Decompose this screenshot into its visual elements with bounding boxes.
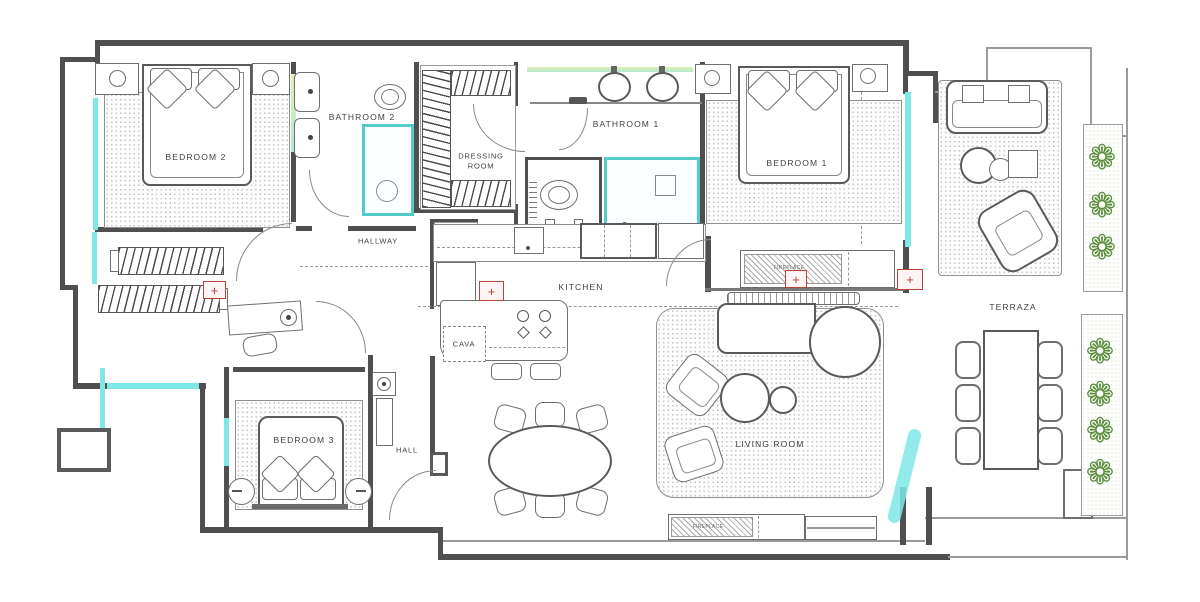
window-closet-bottom: [107, 383, 199, 389]
terrace-chair-4: [1037, 341, 1063, 379]
bathroom2-shower: [362, 124, 414, 216]
terrace-bottom-line-2: [948, 556, 1128, 558]
kitchen-fridge-divider-1: [604, 225, 605, 257]
plant-icon-4: ❁: [1086, 335, 1115, 369]
plant-icon-2: ❁: [1088, 189, 1117, 223]
terrace-post-2: [926, 487, 932, 545]
terrace-chair-3: [955, 427, 981, 465]
window-bedroom1-terrace: [905, 92, 911, 247]
wardrobe-row-1-endcap: [110, 250, 119, 272]
terrace-chair-5: [1037, 384, 1063, 422]
outlet-marker-living-right: +: [897, 269, 923, 290]
bedroom3-nightstand-right-handle: [356, 490, 366, 492]
kitchen-sink-drain: [526, 246, 530, 250]
window-bedroom2-left: [93, 98, 98, 230]
dashed-hallway-line: [300, 266, 428, 267]
kitchen-stool-1: [491, 363, 522, 380]
bathroom1-sink-2: [646, 72, 679, 102]
terrace-right-edge: [1126, 68, 1128, 560]
terrace-chair-6: [1037, 427, 1063, 465]
bedroom2-lamp-left: [109, 70, 126, 87]
label-bedroom3: BEDROOM 3: [274, 435, 335, 445]
fireplace-top-divider: [848, 252, 849, 286]
bathroom1-shower: [604, 157, 700, 232]
hall-column-dot: [382, 382, 386, 386]
stove-burner-1: [517, 310, 529, 322]
terrace-sofa-cushion-1: [962, 85, 984, 103]
plant-icon-7: ❁: [1086, 456, 1115, 490]
label-dressing-line2: ROOM: [468, 162, 495, 171]
outlet-marker-kitchen: +: [479, 281, 504, 301]
window-bathroom1-top: [527, 67, 693, 72]
label-fireplace-top: FIREPLACE: [774, 265, 805, 271]
terrace-bottom-line-1: [443, 540, 925, 542]
bathroom1-soap-dish: [569, 97, 587, 104]
bedroom1-lamp-right: [860, 68, 876, 84]
wall-bedroom3-top: [233, 367, 365, 372]
wall-top-left-step-h: [60, 57, 100, 62]
terrace-dining-table: [983, 330, 1039, 470]
wardrobe-row-2: [98, 285, 220, 313]
bathroom2-sink-1-drain: [308, 89, 313, 94]
sofa-round-chaise: [809, 306, 881, 378]
plant-icon-6: ❁: [1086, 414, 1115, 448]
wall-bathroom2-bottom-a: [296, 226, 312, 231]
stove-burner-2: [539, 310, 551, 322]
terrace-chair-2: [955, 384, 981, 422]
wc-toilet-bowl: [548, 186, 570, 204]
dining-table-oval: [488, 425, 612, 497]
terrace-chair-1: [955, 341, 981, 379]
coffee-table-large: [720, 373, 770, 423]
wall-bottom-left: [200, 527, 443, 533]
label-bedroom2: BEDROOM 2: [166, 152, 227, 162]
bedroom3-headboard: [252, 504, 348, 509]
label-kitchen: KITCHEN: [558, 282, 603, 292]
wall-bathroom2-right: [414, 62, 419, 212]
bathroom1-counter-line: [530, 102, 702, 104]
kitchen-fridge-unit: [580, 223, 657, 259]
plant-icon-3: ❁: [1088, 231, 1117, 265]
window-left-lower: [100, 368, 105, 428]
label-cava: CAVA: [453, 340, 476, 349]
coffee-table-small: [769, 386, 797, 414]
label-bathroom2: BATHROOM 2: [329, 112, 396, 122]
label-terraza: TERRAZA: [989, 302, 1036, 312]
desk-chair: [242, 332, 279, 358]
kitchen-sink: [514, 227, 544, 254]
bathroom2-sink-1: [294, 72, 320, 112]
door-hall-corridor: [316, 301, 366, 353]
sofa-seat: [717, 303, 816, 354]
tv-bench-line: [705, 288, 905, 291]
bathroom2-shower-stool: [376, 180, 398, 202]
plant-icon-5: ❁: [1086, 378, 1115, 412]
terrace-floor-edge: [925, 517, 1128, 519]
label-bedroom1: BEDROOM 1: [767, 158, 828, 168]
fireplace-bottom-divider: [758, 516, 759, 538]
label-fireplace-bottom: FIREPLACE: [693, 524, 724, 530]
door-wc: [559, 108, 588, 150]
terrace-table-square: [1008, 150, 1038, 178]
label-living-room: LIVING ROOM: [736, 439, 805, 449]
terrace-sofa-seatline: [952, 100, 1042, 128]
kitchen-stool-2: [530, 363, 561, 380]
dressing-closet-top: [451, 70, 511, 96]
wall-top: [95, 40, 908, 46]
wall-left-lower: [73, 285, 78, 388]
door-bathroom2: [309, 170, 349, 217]
dressing-closet-left: [422, 70, 451, 208]
door-entrance: [389, 470, 436, 520]
window-left-mid: [92, 232, 97, 284]
label-bathroom1: BATHROOM 1: [593, 119, 660, 129]
window-bedroom3-left: [224, 418, 229, 466]
plant-icon-1: ❁: [1088, 141, 1117, 175]
bedroom1-lamp-left: [704, 70, 720, 86]
bathroom2-toilet-bowl: [381, 89, 399, 105]
pilaster-bottom-left: [57, 428, 111, 472]
outlet-marker-living-left: +: [785, 270, 807, 288]
wall-bathroom2-bottom-b: [348, 226, 416, 231]
desk-lamp-dot: [286, 315, 291, 320]
dressing-closet-bottom: [451, 180, 511, 207]
island-dashed-line: [489, 347, 565, 348]
terrace-sofa-cushion-2: [1008, 85, 1030, 103]
label-hall: HALL: [396, 446, 418, 455]
wall-bottom-main: [438, 554, 950, 560]
bathroom1-sink-1: [598, 72, 631, 102]
bedroom3-nightstand-left-handle: [232, 490, 242, 492]
wardrobe-row-1: [118, 247, 224, 275]
terrace-step-line-3: [986, 47, 1092, 49]
label-hallway: HALLWAY: [358, 237, 398, 246]
wall-left-upper: [60, 57, 65, 290]
bathroom1-shower-seat: [655, 175, 676, 196]
outlet-marker-closet: +: [203, 281, 226, 299]
wall-bottomleft-v: [200, 385, 205, 533]
bathroom2-sink-2: [294, 118, 320, 158]
kitchen-fridge-divider-2: [630, 225, 631, 257]
bedroom2-lamp-right: [262, 70, 279, 87]
hall-radiator: [376, 398, 393, 446]
label-dressing-line1: DRESSING: [458, 152, 504, 161]
wc-louver: [529, 178, 537, 218]
floor-plan: SEC LAV: [0, 0, 1200, 602]
bathroom2-sink-2-drain: [308, 135, 313, 140]
fireplace-bottom-shelf-line: [807, 527, 875, 529]
